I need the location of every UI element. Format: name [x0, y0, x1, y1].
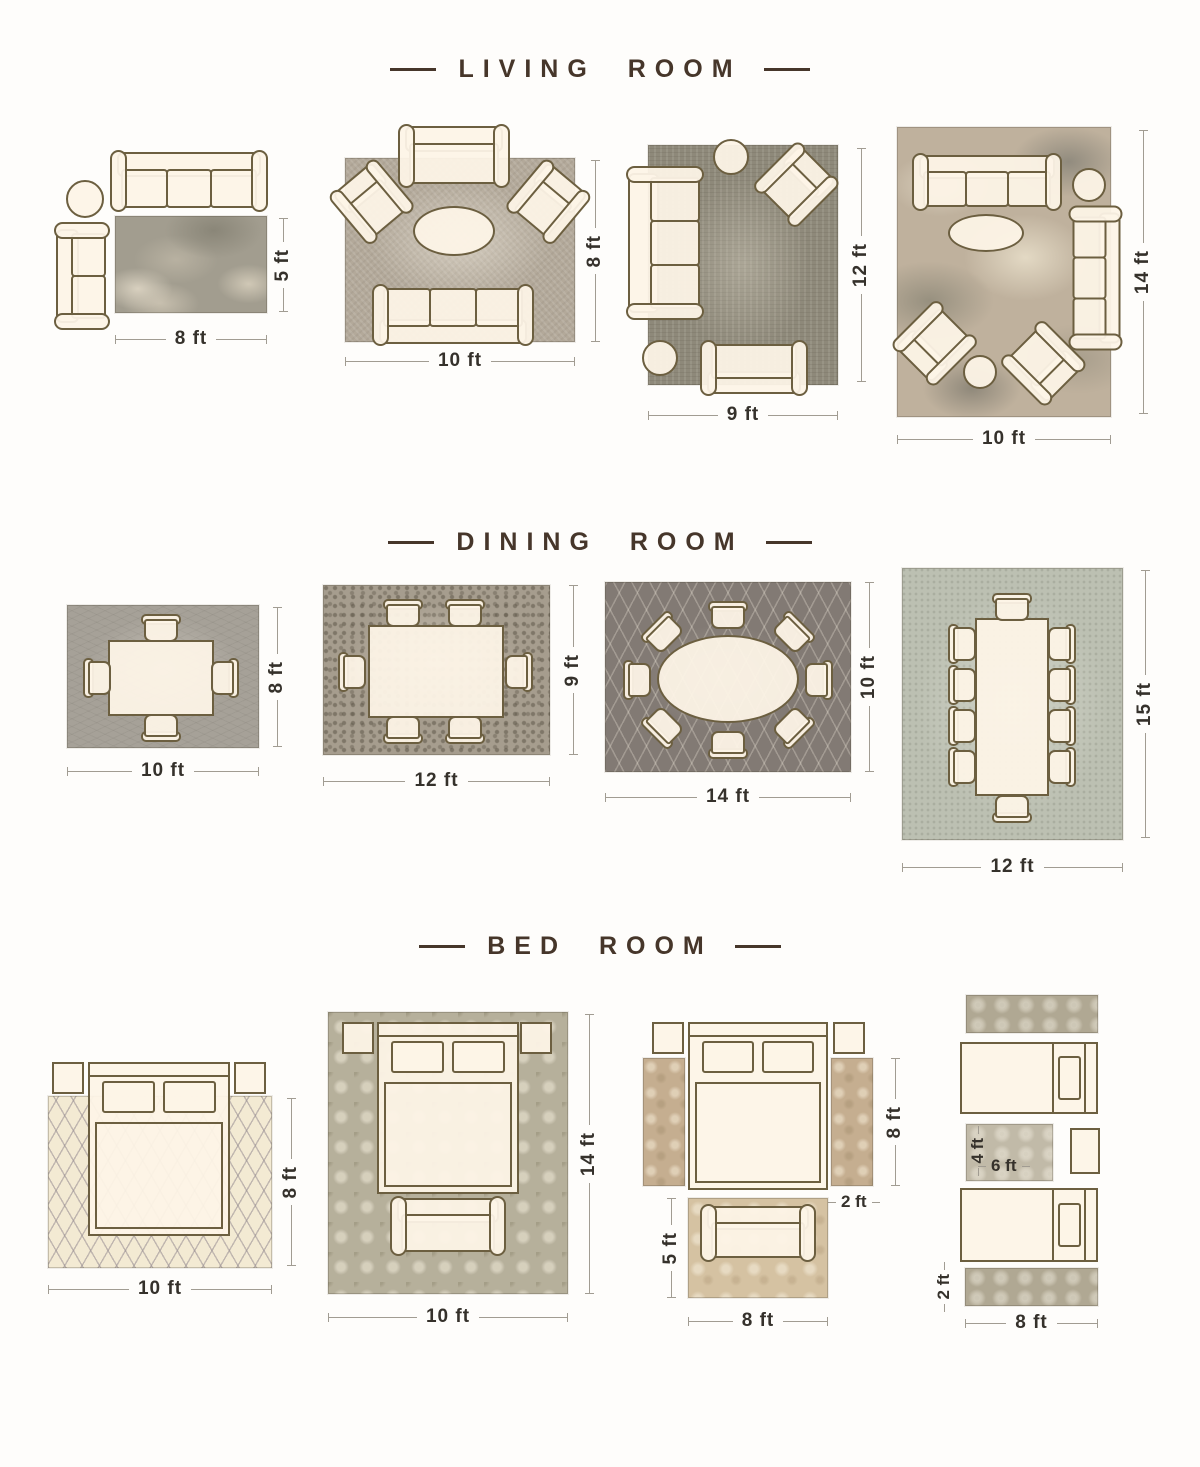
pillow	[1058, 1056, 1081, 1100]
twin-bed	[960, 1188, 1098, 1262]
runner-width-dimension: 8 ft	[965, 1312, 1098, 1334]
rug-size-guide: LIVING ROOM 8 ft 5 ft	[0, 0, 1200, 1467]
runner-rug-2x8	[966, 995, 1098, 1033]
accent-width-dimension: 6 ft	[978, 1156, 1050, 1176]
bedroom-layout-twin-runners: 4 ft 6 ft 2 ft 8 ft	[0, 0, 1200, 1467]
runner-height-dimension: 2 ft	[934, 1262, 954, 1312]
nightstand	[1070, 1128, 1100, 1174]
twin-bed	[960, 1042, 1098, 1114]
runner-rug-2x8	[965, 1268, 1098, 1306]
pillow	[1058, 1203, 1081, 1247]
